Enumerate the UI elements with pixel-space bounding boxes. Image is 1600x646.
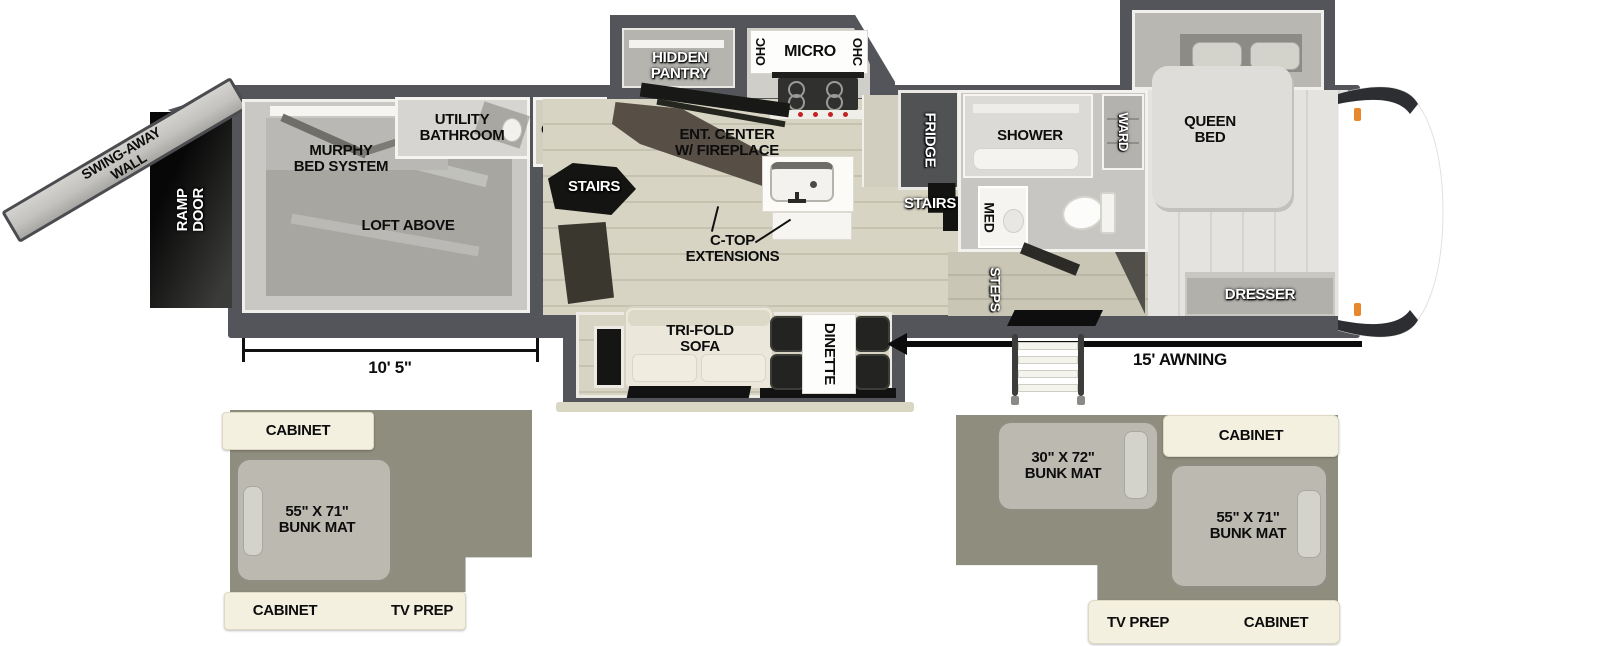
- med-text: MED: [982, 202, 997, 232]
- marker-light-icon: [1354, 303, 1361, 316]
- fridge-text: FRIDGE: [921, 113, 937, 168]
- dinette-chair: [854, 354, 890, 390]
- hidden-pantry-label: HIDDEN PANTRY: [630, 46, 730, 86]
- entry-ladder: [1012, 334, 1090, 406]
- sofa-cushion: [632, 354, 697, 382]
- loft-right-bunk-top-pillow: [1124, 431, 1148, 499]
- ladder-rail: [1078, 334, 1084, 396]
- sink-drain: [810, 181, 817, 188]
- fridge-label: FRIDGE: [898, 90, 960, 190]
- awning-bar: [905, 341, 1362, 347]
- ohc-left-label: OHC: [750, 30, 772, 74]
- island-sink: [770, 162, 834, 202]
- entry-threshold-mat: [1007, 310, 1103, 326]
- kitchen-counter: [862, 95, 898, 187]
- wardrobe-text: WARD: [1116, 113, 1130, 152]
- dinette-chair: [770, 316, 806, 352]
- loft-right-bunk-top-label: 30" X 72" BUNK MAT: [1008, 446, 1118, 486]
- tri-fold-sofa-label: TRI-FOLD SOFA: [640, 320, 760, 358]
- steps-text: STEPS: [988, 267, 1003, 311]
- shower-ledge: [973, 104, 1079, 113]
- range-knob: [828, 112, 833, 117]
- garage-dimension-label: 10' 5": [330, 357, 450, 379]
- loft-above-label: LOFT ABOVE: [348, 214, 468, 238]
- dinette-chair: [854, 316, 890, 352]
- ladder-foot: [1077, 396, 1085, 405]
- loft-right-cabinet-top-label: CABINET: [1163, 425, 1339, 447]
- loft-right-cabinet-bottom-label: CABINET: [1226, 612, 1326, 634]
- sofa-cushion: [701, 354, 766, 382]
- ladder-rung: [1018, 370, 1078, 378]
- ohc-right-text: OHC: [850, 38, 864, 66]
- loft-left-cabinet-bottom-label: CABINET: [235, 600, 335, 622]
- ladder-foot: [1011, 396, 1019, 405]
- front-cap: [1338, 78, 1446, 346]
- murphy-bed-label: MURPHY BED SYSTEM: [282, 140, 400, 178]
- loft-left-cabinet-top-label: CABINET: [222, 420, 374, 442]
- awning-label: 15' AWNING: [1120, 349, 1240, 371]
- toilet-tank: [1100, 192, 1116, 234]
- micro-label: MICRO: [772, 40, 848, 64]
- steps-label: STEPS: [984, 260, 1006, 318]
- ladder-rung: [1018, 384, 1078, 392]
- queen-bed-label: QUEEN BED: [1160, 108, 1260, 152]
- stairs-left-label: STAIRS: [552, 176, 636, 198]
- loft-left-bunk-label: 55" X 71" BUNK MAT: [252, 500, 382, 540]
- marker-light-icon: [1354, 108, 1361, 121]
- range-knob: [798, 112, 803, 117]
- dinette-chair: [770, 354, 806, 390]
- burner-icon: [826, 94, 843, 111]
- floorplan-canvas: RAMP DOOR SWING-AWAY WALL MURPHY BED SYS…: [0, 0, 1600, 646]
- shower-label: SHOWER: [975, 125, 1085, 147]
- burner-icon: [788, 94, 805, 111]
- sofa-slideout-trim: [556, 402, 914, 412]
- range-knob: [843, 112, 848, 117]
- shower-pan: [973, 148, 1079, 170]
- ladder-rung: [1018, 356, 1078, 364]
- sofa-floor-mat: [627, 386, 752, 398]
- dinette-text: DINETTE: [821, 323, 837, 385]
- faucet-stem-icon: [795, 192, 799, 203]
- wardrobe-label: WARD: [1102, 94, 1144, 170]
- ladder-rung: [1018, 342, 1078, 350]
- dim-line: [244, 349, 538, 352]
- ohc-right-label: OHC: [846, 30, 868, 74]
- loft-right-bunk-right-label: 55" X 71" BUNK MAT: [1192, 506, 1304, 546]
- awning-arrowhead-icon: [887, 333, 907, 355]
- ramp-door-text: RAMP DOOR: [175, 188, 207, 232]
- loft-left-tv-prep-label: TV PREP: [372, 600, 472, 622]
- med-sink: [1003, 209, 1024, 233]
- dresser-label: DRESSER: [1185, 284, 1335, 306]
- ohc-left-text: OHC: [754, 38, 768, 66]
- utility-bathroom-label: UTILITY BATHROOM: [398, 106, 526, 150]
- range-knob: [813, 112, 818, 117]
- dinette-label: DINETTE: [802, 314, 856, 394]
- ctop-extensions-label: C-TOP EXTENSIONS: [660, 232, 805, 266]
- loft-right-tv-prep-label: TV PREP: [1088, 612, 1188, 634]
- slide-window: [594, 326, 624, 388]
- med-label: MED: [976, 188, 1002, 246]
